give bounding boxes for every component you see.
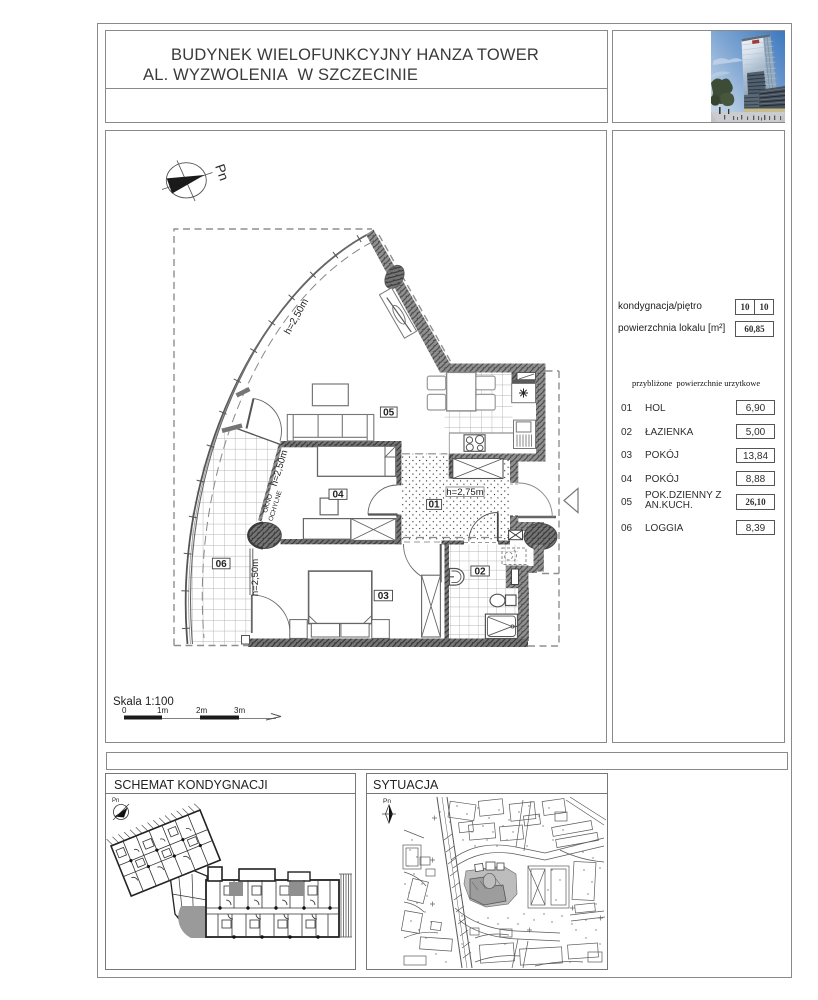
svg-text:01: 01 xyxy=(428,500,440,511)
svg-text:02: 02 xyxy=(474,566,486,577)
svg-text:Pn: Pn xyxy=(383,798,391,805)
svg-text:05: 05 xyxy=(383,407,395,418)
svg-text:3m: 3m xyxy=(234,706,245,715)
svg-text:03: 03 xyxy=(378,591,390,602)
svg-text:04: 04 xyxy=(332,490,344,501)
svg-text:06: 06 xyxy=(216,559,228,570)
svg-text:0: 0 xyxy=(122,706,127,715)
svg-text:Pn: Pn xyxy=(112,798,119,804)
svg-text:h=2,75m: h=2,75m xyxy=(446,487,483,498)
svg-text:h=2,50m: h=2,50m xyxy=(250,559,261,596)
svg-text:2m: 2m xyxy=(196,706,207,715)
svg-text:Pn: Pn xyxy=(212,162,232,182)
svg-text:1m: 1m xyxy=(157,706,168,715)
